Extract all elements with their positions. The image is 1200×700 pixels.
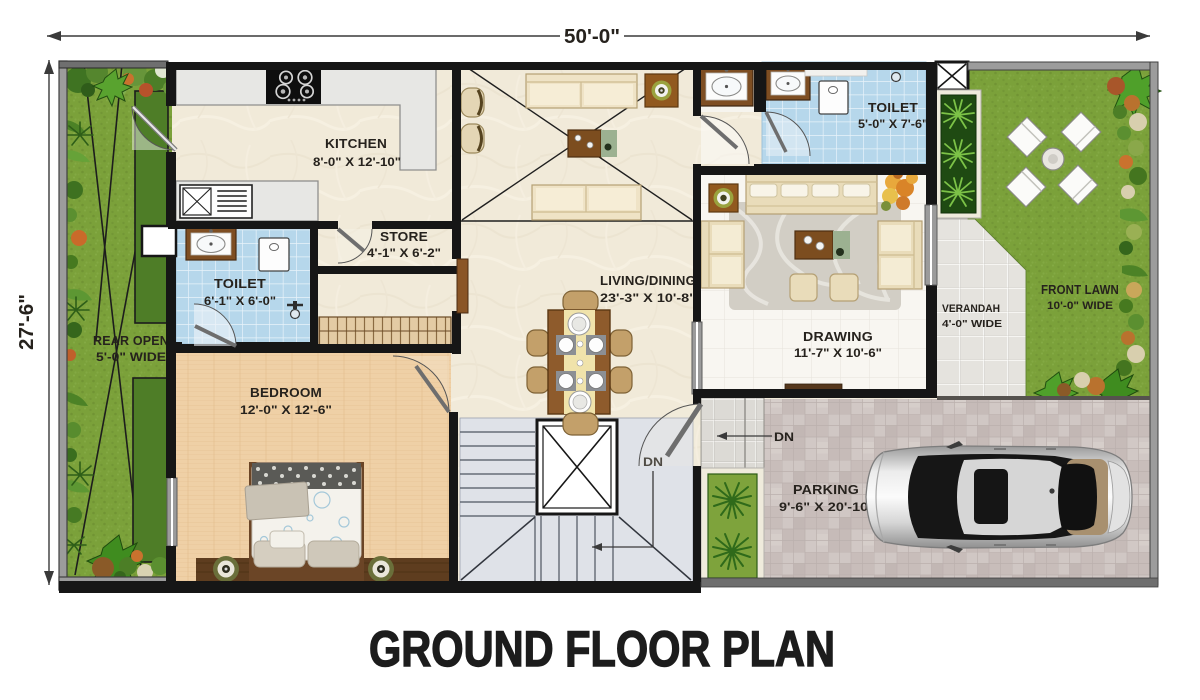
svg-text:4'-1" X 6'-2": 4'-1" X 6'-2" [367, 246, 441, 260]
svg-text:FRONT LAWN: FRONT LAWN [1041, 282, 1119, 297]
svg-text:KITCHEN: KITCHEN [325, 136, 387, 151]
svg-text:8'-0" X 12'-10": 8'-0" X 12'-10" [313, 155, 401, 169]
svg-text:11'-7" X 10'-6": 11'-7" X 10'-6" [794, 346, 882, 360]
svg-text:VERANDAH: VERANDAH [942, 303, 1000, 315]
svg-text:10'-0" WIDE: 10'-0" WIDE [1047, 300, 1113, 312]
svg-text:50'-0": 50'-0" [564, 26, 620, 48]
svg-text:9'-6" X 20'-10": 9'-6" X 20'-10" [779, 500, 875, 514]
svg-text:4'-0" WIDE: 4'-0" WIDE [942, 318, 1002, 330]
svg-text:TOILET: TOILET [214, 276, 266, 291]
svg-text:23'-3" X 10'-8": 23'-3" X 10'-8" [600, 291, 696, 305]
svg-text:LIVING/DINING: LIVING/DINING [600, 273, 696, 288]
svg-text:REAR OPEN: REAR OPEN [93, 333, 169, 348]
svg-text:DRAWING: DRAWING [803, 329, 873, 344]
svg-text:12'-0" X 12'-6": 12'-0" X 12'-6" [240, 403, 332, 417]
svg-text:STORE: STORE [380, 229, 428, 244]
svg-text:5'-0" WIDE: 5'-0" WIDE [96, 350, 166, 364]
svg-text:PARKING: PARKING [793, 482, 859, 497]
svg-text:6'-1" X 6'-0": 6'-1" X 6'-0" [204, 294, 276, 308]
svg-text:BEDROOM: BEDROOM [250, 385, 322, 400]
svg-text:5'-0" X 7'-6": 5'-0" X 7'-6" [858, 117, 928, 131]
svg-text:GROUND FLOOR PLAN: GROUND FLOOR PLAN [369, 621, 835, 677]
svg-text:27'-6": 27'-6" [16, 294, 38, 350]
svg-text:DN: DN [774, 430, 794, 444]
svg-text:TOILET: TOILET [868, 100, 918, 115]
